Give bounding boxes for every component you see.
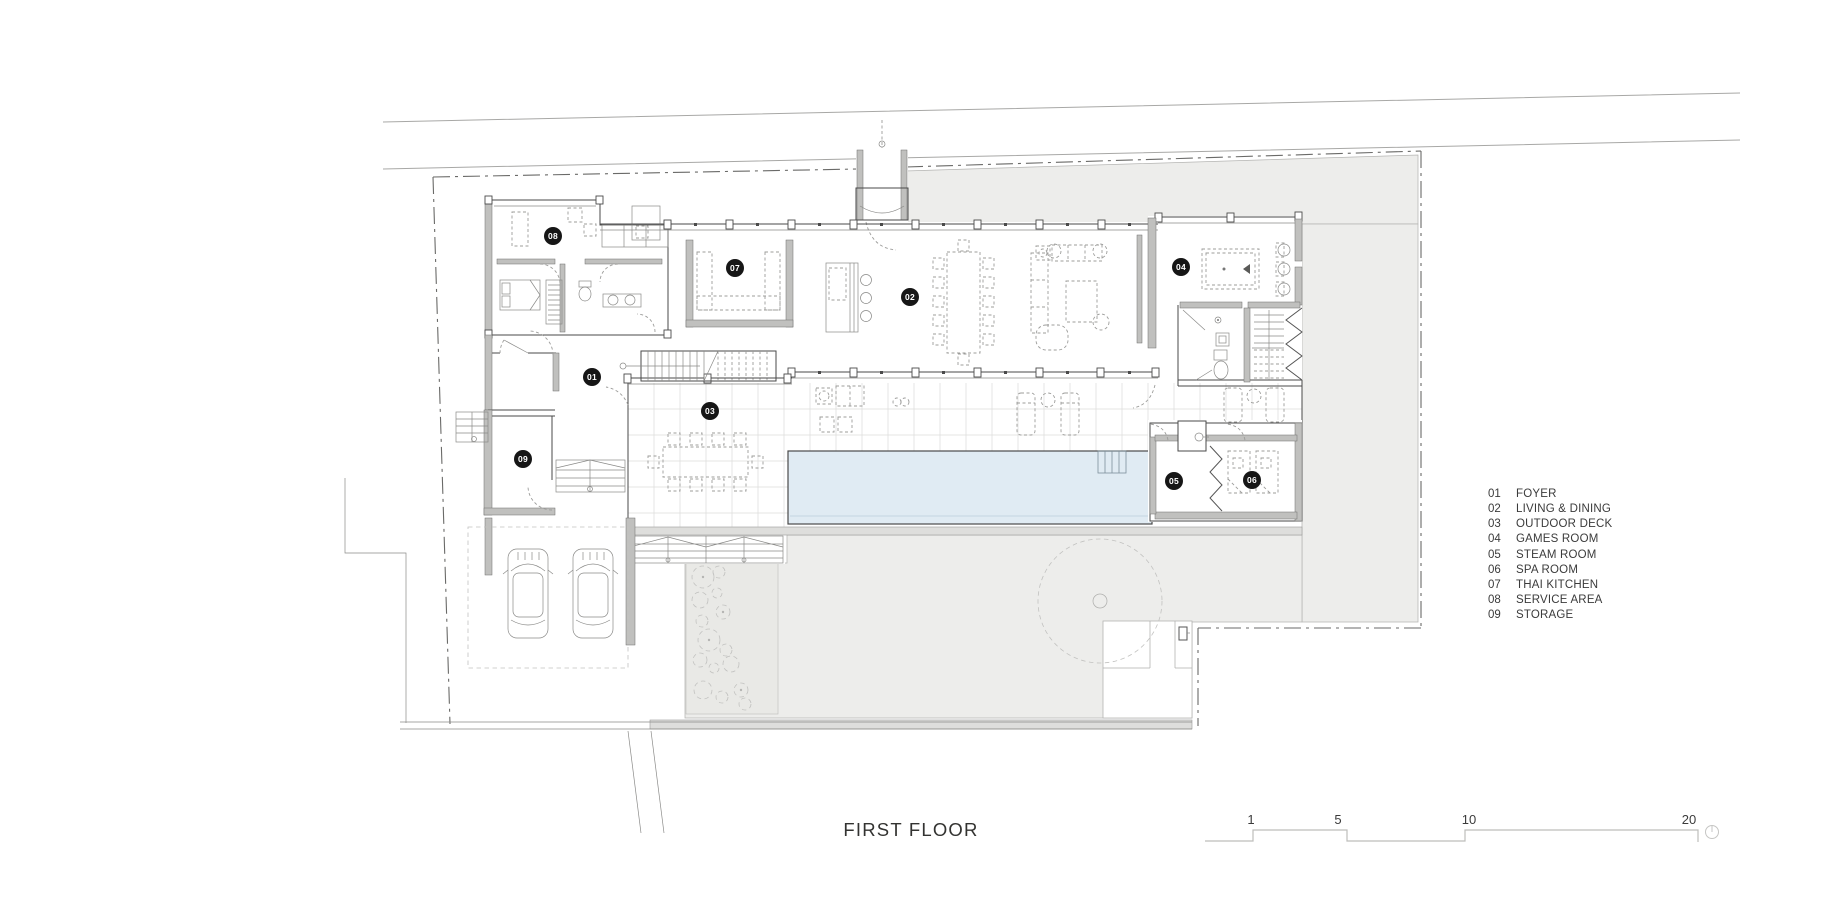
legend-number: 09 [1488, 608, 1516, 623]
legend-label: STEAM ROOM [1516, 548, 1597, 563]
scale-bar-number: 1 [1247, 812, 1254, 827]
legend-number: 02 [1488, 502, 1516, 517]
legend-row: 09 STORAGE [1488, 608, 1612, 623]
legend-label: LIVING & DINING [1516, 502, 1611, 517]
legend-number: 06 [1488, 563, 1516, 578]
legend-row: 05 STEAM ROOM [1488, 548, 1612, 563]
legend-row: 08 SERVICE AREA [1488, 593, 1612, 608]
room-badge: 03 [701, 402, 719, 420]
room-badge: 02 [901, 288, 919, 306]
floor-plan-drawing [0, 0, 1839, 920]
legend-row: 06 SPA ROOM [1488, 563, 1612, 578]
exterior-steps [456, 412, 488, 442]
legend-row: 03 OUTDOOR DECK [1488, 517, 1612, 532]
garden-pavilion-pad [1103, 621, 1192, 718]
swimming-pool [788, 451, 1152, 524]
legend-number: 07 [1488, 578, 1516, 593]
room-legend: 01 FOYER 02 LIVING & DINING 03 OUTDOOR D… [1488, 487, 1612, 623]
spa-wing [1148, 420, 1302, 522]
legend-number: 08 [1488, 593, 1516, 608]
legend-label: FOYER [1516, 487, 1557, 502]
garden-steps [630, 536, 783, 563]
room-badge: 08 [544, 227, 562, 245]
plan-title: FIRST FLOOR [843, 819, 978, 841]
scale-bar [1205, 826, 1719, 843]
legend-number: 05 [1488, 548, 1516, 563]
planting-bed [686, 558, 778, 714]
room-badge: 09 [514, 450, 532, 468]
road-lines [383, 93, 1740, 169]
legend-row: 04 GAMES ROOM [1488, 532, 1612, 547]
room-badge: 05 [1165, 472, 1183, 490]
room-badge: 06 [1243, 471, 1261, 489]
legend-label: SPA ROOM [1516, 563, 1578, 578]
scale-bar-number: 20 [1682, 812, 1696, 827]
outdoor-shower [1178, 421, 1206, 451]
legend-number: 03 [1488, 517, 1516, 532]
floor-plan-sheet: { "title": { "label": "FIRST FLOOR" }, "… [0, 0, 1839, 920]
legend-number: 01 [1488, 487, 1516, 502]
scale-bar-number: 10 [1462, 812, 1476, 827]
room-badge: 01 [583, 368, 601, 386]
legend-label: STORAGE [1516, 608, 1573, 623]
room-badge: 07 [726, 259, 744, 277]
legend-row: 02 LIVING & DINING [1488, 502, 1612, 517]
legend-row: 01 FOYER [1488, 487, 1612, 502]
legend-label: GAMES ROOM [1516, 532, 1599, 547]
scale-bar-number: 5 [1334, 812, 1341, 827]
legend-number: 04 [1488, 532, 1516, 547]
legend-label: THAI KITCHEN [1516, 578, 1598, 593]
legend-label: OUTDOOR DECK [1516, 517, 1612, 532]
room-badge: 04 [1172, 258, 1190, 276]
legend-label: SERVICE AREA [1516, 593, 1603, 608]
legend-row: 07 THAI KITCHEN [1488, 578, 1612, 593]
north-indicator-icon [1706, 826, 1719, 839]
